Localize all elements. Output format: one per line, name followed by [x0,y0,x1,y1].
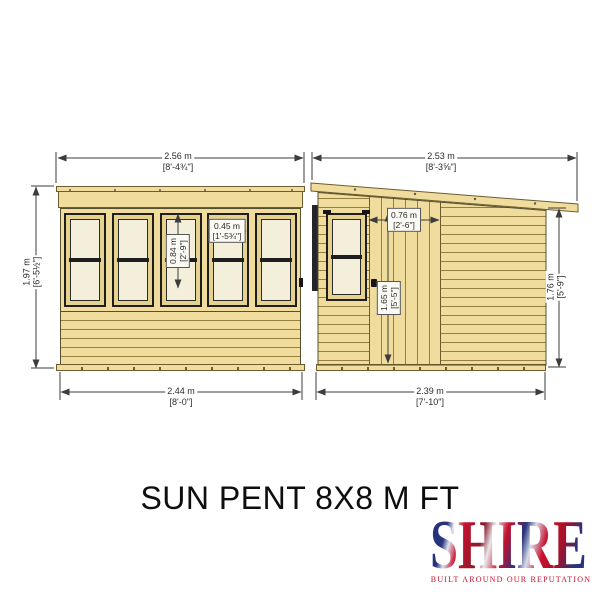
dim-side-wall-height: 1.76 m [5'-9"] [546,271,567,303]
window [255,213,297,307]
window [64,213,106,307]
dim-metric: 1.97 m [22,256,32,288]
side-corner-trim [312,205,318,291]
dim-front-window-width: 0.45 m [1'-5¾"] [209,219,246,243]
shire-wordmark: SHIRE [430,517,587,574]
window-glazing-bar [69,258,101,262]
dim-imperial: [2'-6"] [393,220,415,230]
dim-side-base-width-imperial: [7'-10"] [414,398,446,408]
dim-metric: 0.45 m [214,221,240,231]
dim-imperial: [5'-5"] [389,287,399,309]
window-glazing-bar [117,258,149,262]
window-glazing-bar [260,258,292,262]
side-elevation [300,0,600,420]
front-elevation [0,0,310,420]
dim-imperial: [5'-9"] [556,274,566,301]
dim-side-overall-width-imperial: [8'-3⅝"] [424,163,458,173]
dim-front-overall-height: 1.97 m [6'-5½"] [22,255,43,289]
dim-imperial: [2'-9"] [178,240,188,262]
dim-imperial: [1'-5¾"] [213,231,242,241]
shire-logo: SHIRE BUILT AROUND OUR REPUTATION [430,517,592,584]
side-floor-base [316,364,546,371]
dim-metric: 1.76 m [546,271,556,303]
dim-imperial: [6'-5½"] [32,255,42,289]
dim-side-base-width-metric: 2.39 m [414,387,446,397]
dim-front-overall-width-metric: 2.56 m [162,152,194,162]
side-window [326,213,367,301]
window-hinge [323,210,331,214]
front-roof-fascia [58,192,303,208]
window-glazing-bar [331,255,362,259]
dim-side-door-height: 1.65 m [5'-5"] [377,281,401,315]
window-hinge [362,210,370,214]
side-wall [318,190,546,366]
window-glazing-bar [212,258,244,262]
dim-front-window-height: 0.84 m [2'-9"] [166,234,190,268]
dim-metric: 1.65 m [379,285,389,311]
dim-metric: 0.76 m [391,210,417,220]
dim-front-base-width-imperial: [8'-0"] [168,398,195,408]
dim-metric: 0.84 m [168,238,178,264]
dim-front-overall-width-imperial: [8'-4¾"] [161,163,195,173]
side-wall-rear-section [441,190,546,366]
dim-side-door-width: 0.76 m [2'-6"] [387,208,421,232]
roof-screw-dots [69,189,71,191]
front-lower-wall [60,312,301,364]
window [112,213,154,307]
dim-front-base-width-metric: 2.44 m [165,387,197,397]
front-floor-base [56,364,305,371]
dim-side-overall-width-metric: 2.53 m [425,152,457,162]
